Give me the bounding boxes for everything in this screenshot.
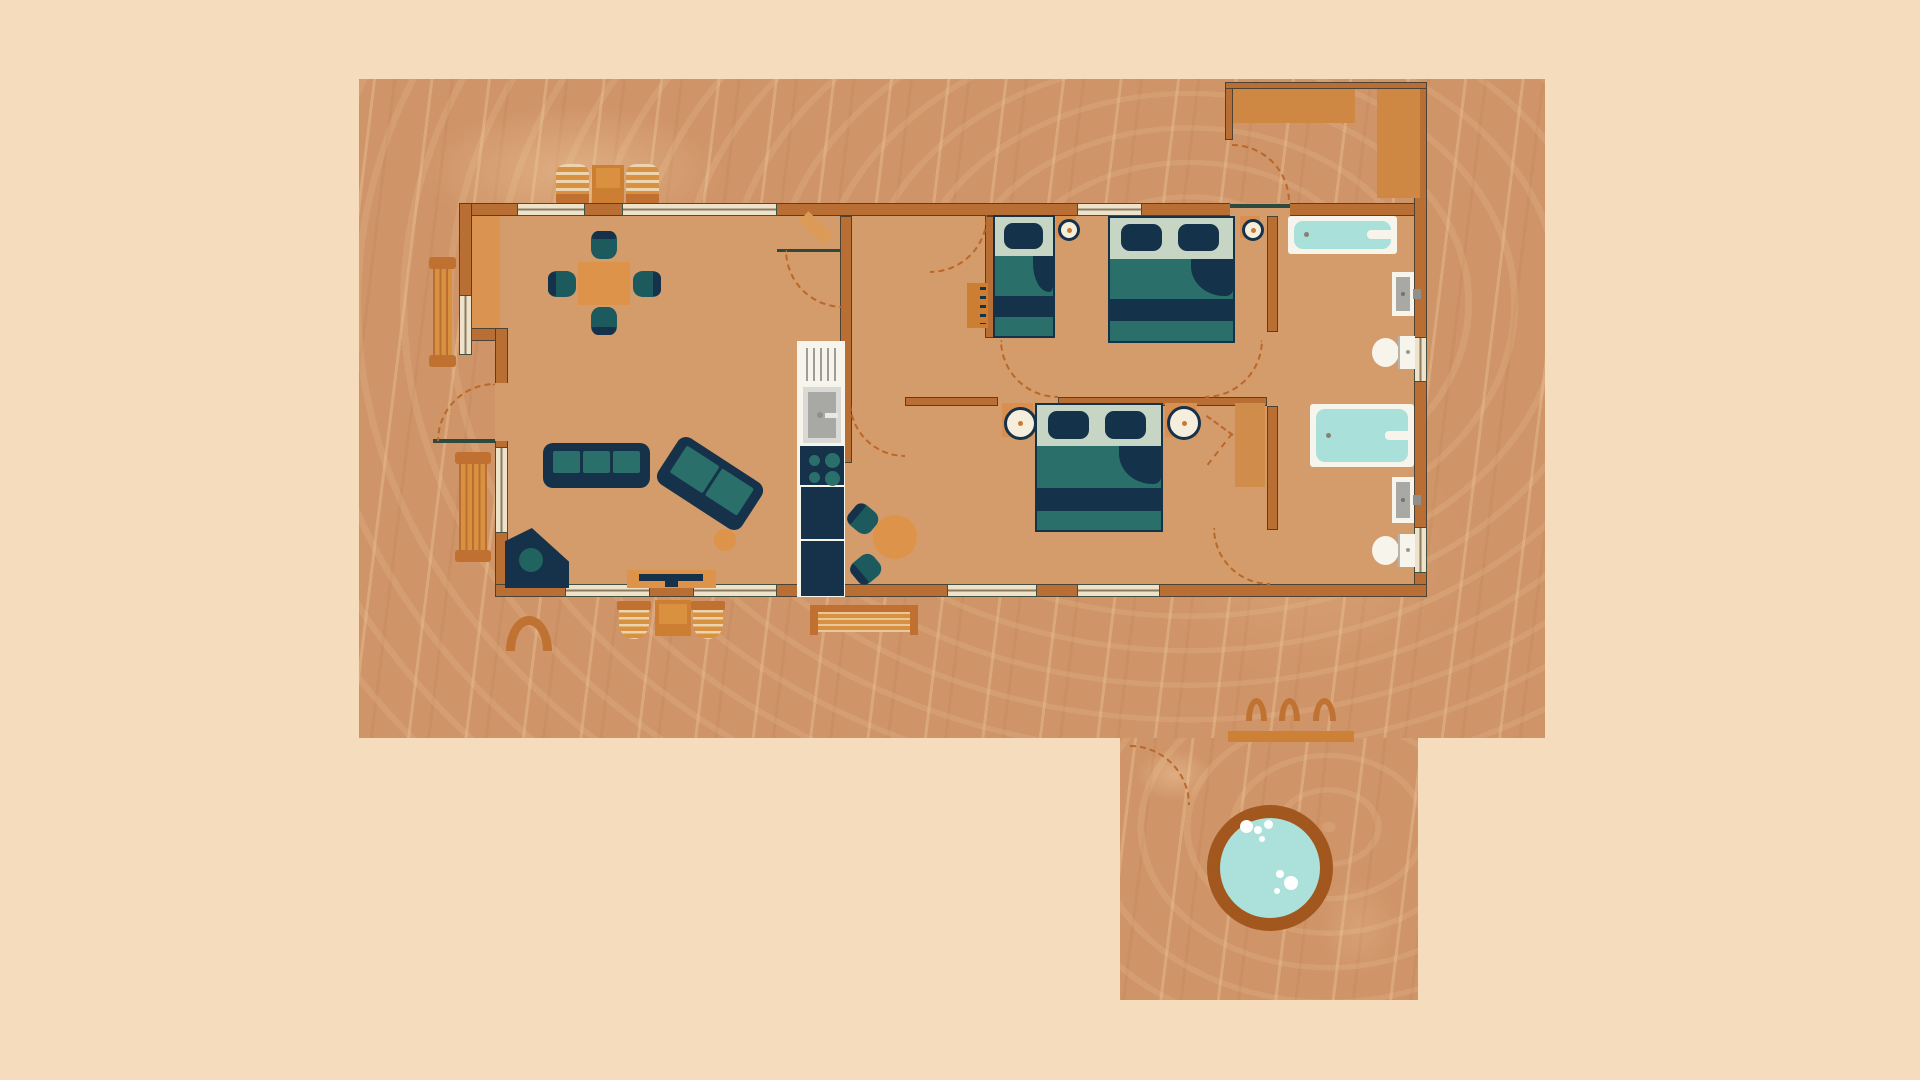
fold-part <box>1191 259 1233 296</box>
wardrobe-bedroom2 <box>1235 403 1265 487</box>
bed-double-bedroom1 <box>1108 216 1235 343</box>
cap-part <box>429 257 456 269</box>
wall-lamp-bedroom1-left <box>1056 216 1076 238</box>
porch-wall-top <box>1225 82 1427 89</box>
breakfast-table <box>873 515 917 559</box>
hot-tub <box>1207 805 1333 931</box>
stripe-part <box>1037 488 1161 511</box>
kitchen-stove <box>800 446 844 485</box>
bed-double-bedroom2 <box>1035 403 1163 532</box>
dining-chair-west <box>548 271 576 297</box>
nightstand-bedroom2-left <box>1002 403 1033 437</box>
window-bottom-3 <box>947 584 1037 597</box>
deck-chair-2 <box>691 601 725 639</box>
pil-part <box>1105 411 1146 439</box>
bathtub-bathroom1 <box>1288 216 1397 254</box>
deck-bench-upper-left <box>429 257 456 367</box>
seat-part <box>693 610 723 639</box>
cap-part <box>429 355 456 367</box>
window-top-2 <box>622 203 777 216</box>
notch-part <box>1367 230 1391 239</box>
deck-bench-long <box>810 605 918 635</box>
dot-part <box>1406 350 1410 354</box>
bed-twin-bedroom1 <box>993 215 1055 338</box>
hot-tub-step-bar <box>1228 731 1354 742</box>
body-part <box>459 464 487 550</box>
deck-lounger-2 <box>626 164 659 204</box>
bowl-part <box>1372 536 1399 565</box>
pil-part <box>1121 224 1162 251</box>
bulb-part <box>1242 219 1264 241</box>
deck-lounger-table-top <box>596 168 620 188</box>
sink-bathroom1 <box>1392 272 1414 316</box>
drain-part <box>1304 232 1309 237</box>
porch-canopy-tall <box>1377 89 1420 198</box>
porch-canopy-wide <box>1233 89 1355 123</box>
dining-chair-north <box>591 231 617 259</box>
cush-part <box>553 451 640 473</box>
seat-part <box>619 610 649 639</box>
stub-part <box>665 581 678 587</box>
bubble-part <box>1240 820 1253 833</box>
rail-part <box>810 605 918 612</box>
window-top-1 <box>517 203 585 216</box>
bowl-part <box>1372 338 1399 367</box>
sofa-three-seat <box>543 443 650 488</box>
stripe-part <box>995 296 1053 317</box>
toilet-bathroom2 <box>1372 534 1415 567</box>
dot-part <box>1401 498 1405 502</box>
dot-part <box>1406 548 1410 552</box>
porch-wall-left <box>1225 82 1233 140</box>
floor-plan-canvas <box>0 0 1920 1080</box>
cap-part <box>455 550 491 562</box>
pil-part <box>1048 411 1089 439</box>
c-part <box>583 451 610 473</box>
kitchen-counter-2 <box>801 541 844 596</box>
deck-bench-lower-left <box>455 452 491 562</box>
drain-part <box>1326 433 1331 438</box>
tap-part <box>825 413 838 418</box>
deck-table-top <box>659 604 687 624</box>
slats-part <box>980 287 986 324</box>
wall-bedroom-divider-left <box>905 397 998 406</box>
bulb-part <box>1167 406 1201 440</box>
knob-part <box>817 412 823 418</box>
screen-part <box>639 574 703 581</box>
kitchen-sink <box>803 387 841 443</box>
bubble-part <box>1284 876 1298 890</box>
tv-console <box>627 570 716 588</box>
bubble-part <box>1254 826 1262 834</box>
notch-part <box>1385 431 1408 440</box>
cap-part <box>691 601 725 610</box>
c-part <box>613 451 640 473</box>
hall-dresser <box>967 283 988 328</box>
window-bottom-4 <box>1077 584 1160 597</box>
bubble-part <box>1276 870 1284 878</box>
deck-chair-1 <box>617 601 651 639</box>
pil-part <box>1004 223 1043 249</box>
wall-bath1-left <box>1267 216 1278 332</box>
cap-part <box>617 601 651 610</box>
porch-door-line <box>1230 204 1290 208</box>
kitchen-counter-1 <box>801 487 844 539</box>
back-part <box>592 327 616 335</box>
c-part <box>553 451 580 473</box>
bulb-part <box>1004 407 1037 440</box>
bulb-part <box>1058 219 1080 241</box>
wall-lamp-bedroom1-right <box>1240 216 1260 238</box>
fold-part <box>1033 256 1053 292</box>
cap-part <box>455 452 491 464</box>
stripe-part <box>1110 299 1233 321</box>
wall-bath2-left <box>1267 406 1278 530</box>
water-part <box>1220 818 1320 918</box>
bubble-part <box>1274 888 1280 894</box>
fold-part <box>1119 446 1161 484</box>
slats-part <box>626 164 659 194</box>
entry-rug <box>472 216 500 340</box>
tap-part <box>1413 495 1421 505</box>
dot-part <box>1401 292 1405 296</box>
toilet-bathroom1 <box>1372 336 1415 369</box>
bubble-part <box>1264 820 1273 829</box>
window-left-upper <box>459 295 472 355</box>
leg-part <box>810 605 818 635</box>
dining-chair-south <box>591 307 617 335</box>
window-left-lower <box>495 447 508 533</box>
dining-table <box>578 262 630 305</box>
dining-chair-east <box>633 271 661 297</box>
sink-bathroom2 <box>1392 477 1414 523</box>
window-top-bedroom1 <box>1077 203 1142 216</box>
slats-part <box>556 164 589 194</box>
fridge <box>804 346 838 383</box>
window-right-bath1 <box>1414 337 1427 382</box>
back-part <box>548 272 556 296</box>
leg-part <box>910 605 918 635</box>
bathtub-bathroom2 <box>1310 404 1414 467</box>
back-part <box>653 272 661 296</box>
body-part <box>818 612 910 632</box>
bubble-part <box>1259 836 1265 842</box>
window-right-bath2 <box>1414 527 1427 573</box>
side-table <box>714 529 736 551</box>
nightstand-bedroom2-right <box>1165 403 1197 437</box>
front-door-gap <box>495 383 508 441</box>
back-part <box>592 231 616 239</box>
body-part <box>433 269 452 355</box>
pil-part <box>1178 224 1219 251</box>
tap-part <box>1413 289 1421 299</box>
deck-lounger-1 <box>556 164 589 204</box>
